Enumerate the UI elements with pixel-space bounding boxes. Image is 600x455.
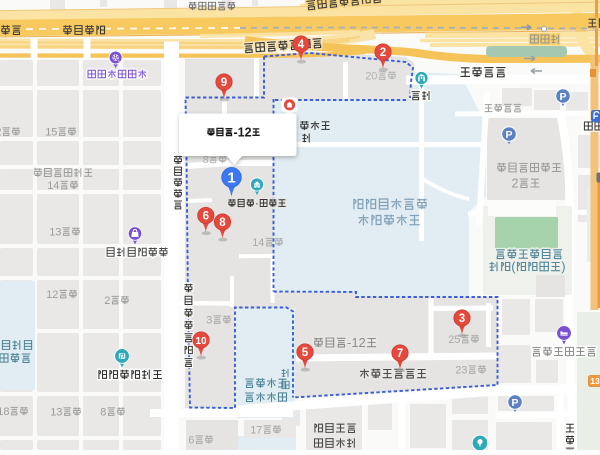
- svg-text:(: (: [511, 259, 516, 274]
- svg-text:·: ·: [255, 198, 259, 210]
- svg-text:9: 9: [221, 77, 227, 89]
- svg-text:20: 20: [365, 71, 377, 83]
- svg-text:13: 13: [50, 407, 62, 419]
- svg-text:14: 14: [252, 237, 264, 249]
- svg-text:17: 17: [250, 425, 262, 437]
- svg-text:13: 13: [49, 227, 61, 239]
- svg-text:2: 2: [512, 177, 519, 191]
- svg-text:-12: -12: [347, 335, 366, 350]
- svg-text:6: 6: [188, 435, 194, 447]
- svg-text:): ): [561, 259, 565, 274]
- svg-text:7: 7: [397, 348, 403, 360]
- svg-text:18: 18: [0, 406, 9, 418]
- svg-text:1: 1: [227, 170, 235, 187]
- svg-text:2: 2: [380, 47, 386, 59]
- svg-text:P: P: [559, 91, 566, 103]
- svg-text:-12: -12: [234, 126, 252, 140]
- svg-text:P: P: [505, 129, 512, 141]
- svg-text:P: P: [511, 397, 518, 409]
- svg-text:3: 3: [459, 313, 465, 325]
- svg-text:14: 14: [47, 180, 59, 192]
- svg-text:3: 3: [206, 315, 212, 327]
- svg-text:5: 5: [302, 347, 309, 359]
- svg-text:12: 12: [46, 289, 58, 301]
- svg-text:2: 2: [0, 127, 1, 139]
- svg-text:8: 8: [219, 217, 226, 229]
- svg-text:4: 4: [298, 39, 305, 51]
- svg-text:13: 13: [590, 376, 600, 386]
- svg-text:2: 2: [104, 295, 110, 307]
- svg-text:15: 15: [45, 127, 57, 139]
- svg-text:10: 10: [195, 336, 207, 347]
- svg-text:6: 6: [203, 210, 209, 222]
- svg-text:23: 23: [455, 365, 467, 377]
- svg-text:8: 8: [100, 407, 106, 419]
